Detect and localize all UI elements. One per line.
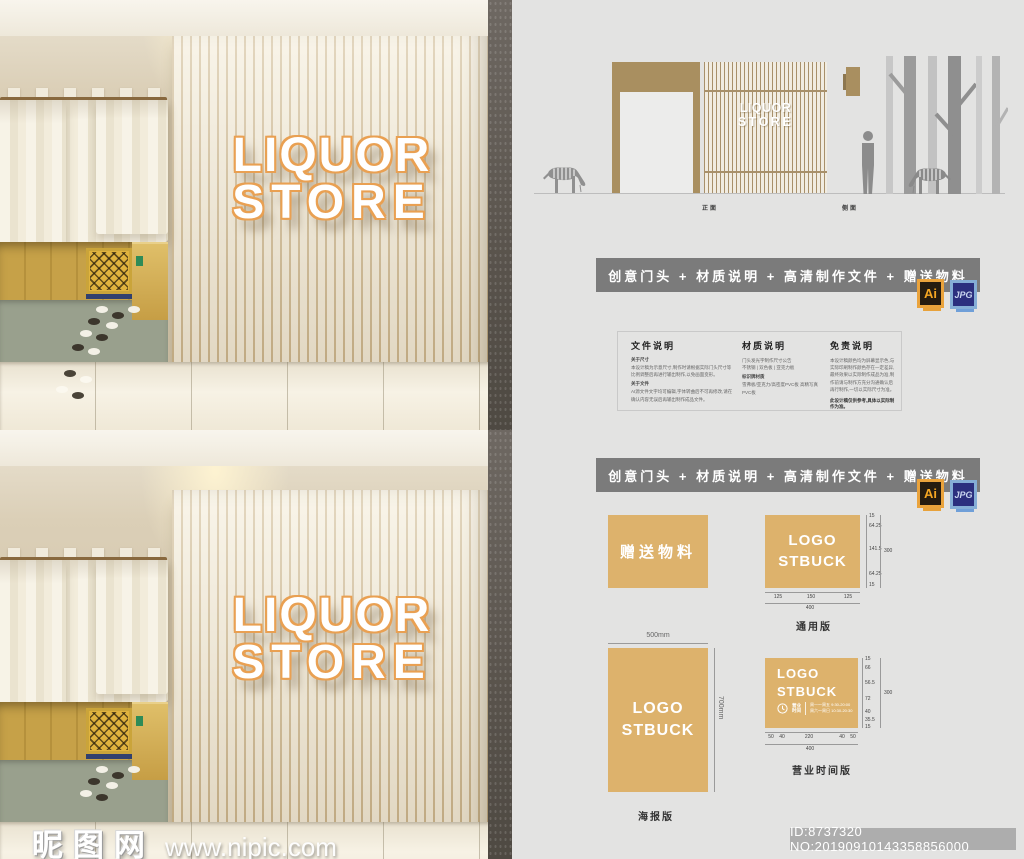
storefront-sign: LIQUOR STORE xyxy=(186,132,478,226)
sign-word-liquor: LIQUOR xyxy=(186,132,478,179)
logo-line2: STBUCK xyxy=(777,683,837,701)
person-silhouette xyxy=(857,130,879,194)
hours-title-line2: 时间 xyxy=(792,708,801,714)
general-version-label: 通用版 xyxy=(796,618,832,633)
dim-label: 35.5 xyxy=(865,717,875,723)
elevation-door-opening xyxy=(620,92,693,193)
spec-paragraph: AI源文件文字均可编辑,字体转曲后不可再修改,请在确认内容无误后再输出制作成品文… xyxy=(631,388,734,402)
business-hours-row: 营业 时间 周一～周五 9:30-20:00 周六～周日 10:30-20:30 xyxy=(777,702,852,715)
dim-line xyxy=(765,592,860,593)
dim-line xyxy=(866,515,867,588)
dim-line xyxy=(765,732,858,733)
image-id-bar: ID:8737320 NO:20190910143358856000 xyxy=(790,828,1016,850)
dim-label: 40 xyxy=(865,709,871,715)
dim-label: 72 xyxy=(865,696,871,702)
jpg-icon-caption-bar xyxy=(956,509,974,512)
spec-subtitle: 关于尺寸 xyxy=(631,357,734,363)
ai-icon-caption-bar xyxy=(923,308,941,311)
dim-line xyxy=(608,643,708,644)
floor-dot xyxy=(88,778,100,785)
poster-width-label: 500mm xyxy=(646,632,669,639)
spec-text-box: 文件说明 关于尺寸 本设计稿为示意尺寸,制作时请根据实际门头尺寸等比例调整后再进… xyxy=(617,331,902,411)
floor-dot xyxy=(96,306,108,313)
sign-word-liquor: LIQUOR xyxy=(186,592,478,639)
logo-line1: LOGO xyxy=(778,531,847,551)
noren-curtain-panel xyxy=(96,560,168,694)
storefront-photo-bottom: LIQUOR STORE xyxy=(0,430,512,859)
elevation-sign-line1: LIQUOR xyxy=(704,101,827,115)
dim-label: 15 xyxy=(869,513,875,519)
floor-dot xyxy=(112,312,124,319)
dim-label: 15 xyxy=(869,582,875,588)
ai-icon-caption-bar xyxy=(923,508,941,511)
noren-curtain-panel xyxy=(96,100,168,234)
general-version-box: LOGO STBUCK xyxy=(765,515,860,588)
elevation-side-sign xyxy=(846,67,860,96)
dim-line xyxy=(862,658,863,728)
fence-mesh xyxy=(90,252,128,290)
elevation-label-front: 正面 xyxy=(690,203,730,212)
floor-dot xyxy=(96,334,108,341)
hours-title: 营业 时间 xyxy=(792,703,801,715)
granite-column xyxy=(488,430,512,859)
floor-dot xyxy=(88,318,100,325)
floor-dot xyxy=(56,386,68,393)
spec-col-material: 材质说明 门头发光字制作尺寸公告 不锈钢 | 双色板 | 亚克力板 标识牌材质 … xyxy=(742,339,822,396)
poster-version-box: LOGO STBUCK xyxy=(608,648,708,792)
elevation-door-jamb-left xyxy=(612,92,620,193)
gift-materials-label: 赠送物料 xyxy=(608,515,708,588)
dim-label: 125 xyxy=(774,594,782,600)
hours-version-box: LOGO STBUCK 营业 时间 周一～周五 9:30-20:00 周六～周日… xyxy=(765,658,858,728)
spec-paragraph: 雪弗板/亚克力/高密度PVC板 高精写真PVC板 xyxy=(742,381,822,395)
exit-sign xyxy=(136,716,143,726)
hours-schedule: 周一～周五 9:30-20:00 周六～周日 10:30-20:30 xyxy=(805,702,852,715)
dim-label: 220 xyxy=(805,734,813,740)
dim-label: 15 xyxy=(865,656,871,662)
spec-title-disclaimer: 免责说明 xyxy=(830,339,896,352)
spec-col-file: 文件说明 关于尺寸 本设计稿为示意尺寸,制作时请根据实际门头尺寸等比例调整后再进… xyxy=(631,339,734,403)
fence-base xyxy=(86,294,132,299)
spec-disclaimer-bold: 此设计稿仅供参考,具体以实际制作为准。 xyxy=(830,398,896,410)
gift-materials-box: 赠送物料 xyxy=(608,515,708,588)
floor-dot xyxy=(88,348,100,355)
dim-total-label: 300 xyxy=(884,690,892,696)
dim-line xyxy=(880,515,881,588)
zebra-silhouette-left xyxy=(540,161,590,195)
floor-dot xyxy=(80,330,92,337)
dim-total-label: 300 xyxy=(884,548,892,554)
floor-dot xyxy=(112,772,124,779)
ceiling xyxy=(0,0,512,36)
fence-base xyxy=(86,754,132,759)
dim-label: 56.5 xyxy=(865,680,875,686)
hours-version-label: 营业时间版 xyxy=(792,762,852,777)
dim-label: 40 xyxy=(779,734,785,740)
spec-paragraph: 门头发光字制作尺寸公告 xyxy=(742,357,822,364)
logo-placeholder: LOGO STBUCK xyxy=(777,665,837,700)
banner-text: 创意门头 + 材质说明 + 高清制作文件 + 赠送物料 xyxy=(608,266,967,285)
fence-mesh xyxy=(90,712,128,750)
ai-file-icon: Ai xyxy=(917,479,944,508)
sign-word-store: STORE xyxy=(186,179,478,226)
storefront-photo-top: LIQUOR STORE xyxy=(0,0,512,430)
site-watermark: 昵图网 www.nipic.com xyxy=(32,820,337,859)
floor-dot xyxy=(106,322,118,329)
dim-label: 66 xyxy=(865,665,871,671)
ai-icon-label: Ai xyxy=(924,486,937,501)
logo-line1: LOGO xyxy=(622,698,695,720)
hours-weekend-row: 周六～周日 10:30-20:30 xyxy=(810,708,852,714)
photo-scene: LIQUOR STORE xyxy=(0,460,512,859)
elevation-sign-line2: STORE xyxy=(704,115,827,129)
floor-dot xyxy=(72,392,84,399)
floor-dot xyxy=(80,790,92,797)
dim-label: 50 xyxy=(768,734,774,740)
dim-line xyxy=(714,648,715,792)
logo-line2: STBUCK xyxy=(778,552,847,572)
elevation-rail xyxy=(704,90,827,92)
jpg-icon-caption-bar xyxy=(956,309,974,312)
dim-label: 15 xyxy=(865,724,871,730)
elevation-sign-text: LIQUOR STORE xyxy=(704,101,827,129)
dim-total-label: 400 xyxy=(806,746,814,752)
dim-line xyxy=(765,603,860,604)
dim-line xyxy=(765,744,858,745)
dim-label: 50 xyxy=(850,734,856,740)
floor-dot xyxy=(128,766,140,773)
ai-icon-label: Ai xyxy=(924,286,937,301)
spec-col-disclaimer: 免责说明 本设计稿颜色均为屏幕显示色,与实际印刷制作颜色存在一定差异,最终效果以… xyxy=(830,339,896,410)
jpg-file-icon: JPG xyxy=(950,280,977,309)
image-id-text: ID:8737320 NO:20190910143358856000 xyxy=(790,824,1016,854)
spec-title-file: 文件说明 xyxy=(631,339,734,352)
elevation-door-header xyxy=(612,62,700,92)
dim-line xyxy=(880,658,881,728)
zebra-silhouette-right xyxy=(903,162,955,196)
play-fence xyxy=(86,708,132,754)
jpg-file-icon: JPG xyxy=(950,480,977,509)
noren-curtain-panel xyxy=(0,102,66,254)
spec-paragraph: 本设计稿颜色均为屏幕显示色,与实际印刷制作颜色存在一定差异,最终效果以实际制作成… xyxy=(830,357,896,393)
floor-dot xyxy=(106,782,118,789)
spec-title-material: 材质说明 xyxy=(742,339,822,352)
clock-icon xyxy=(777,703,788,714)
banner-text: 创意门头 + 材质说明 + 高清制作文件 + 赠送物料 xyxy=(608,466,967,485)
floor-dot xyxy=(64,370,76,377)
dim-label: 125 xyxy=(844,594,852,600)
spec-subtitle: 标识牌材质 xyxy=(742,374,822,380)
elevation-side-sign-bracket xyxy=(843,74,846,90)
floor-dot xyxy=(80,376,92,383)
logo-line1: LOGO xyxy=(777,665,837,683)
elevation-door-jamb-right xyxy=(693,92,700,193)
dim-label: 40 xyxy=(839,734,845,740)
storefront-sign: LIQUOR STORE xyxy=(186,592,478,686)
ai-file-icon: Ai xyxy=(917,279,944,308)
poster-version-label: 海报版 xyxy=(638,808,674,823)
logo-placeholder: LOGO STBUCK xyxy=(778,531,847,572)
dim-total-label: 400 xyxy=(806,605,814,611)
logo-line2: STBUCK xyxy=(622,720,695,742)
floor-dot xyxy=(128,306,140,313)
photo-scene: LIQUOR STORE xyxy=(0,0,512,430)
noren-curtain-panel xyxy=(0,562,66,714)
floor-dot xyxy=(96,766,108,773)
floor-dot xyxy=(72,344,84,351)
spec-paragraph: 本设计稿为示意尺寸,制作时请根据实际门头尺寸等比例调整后再进行输出制作,以免画面… xyxy=(631,364,734,378)
exit-sign xyxy=(136,256,143,266)
dim-label: 150 xyxy=(807,594,815,600)
jpg-icon-label: JPG xyxy=(954,290,972,300)
spec-subtitle: 关于文件 xyxy=(631,381,734,387)
poster-height-label: 700mm xyxy=(717,696,724,719)
elevation-label-side: 侧面 xyxy=(830,203,870,212)
logo-placeholder: LOGO STBUCK xyxy=(622,698,695,741)
design-spec-panel: LIQUOR STORE xyxy=(512,0,1024,859)
elevation-rail xyxy=(704,171,827,173)
granite-column xyxy=(488,0,512,430)
sign-word-store: STORE xyxy=(186,639,478,686)
watermark-site-name: 昵图网 xyxy=(32,820,155,859)
play-fence xyxy=(86,248,132,294)
page: LIQUOR STORE xyxy=(0,0,1024,859)
floor-dot xyxy=(96,794,108,801)
jpg-icon-label: JPG xyxy=(954,490,972,500)
ceiling xyxy=(0,430,512,466)
watermark-site-url: www.nipic.com xyxy=(165,832,337,859)
spec-paragraph: 不锈钢 | 双色板 | 亚克力板 xyxy=(742,364,822,371)
